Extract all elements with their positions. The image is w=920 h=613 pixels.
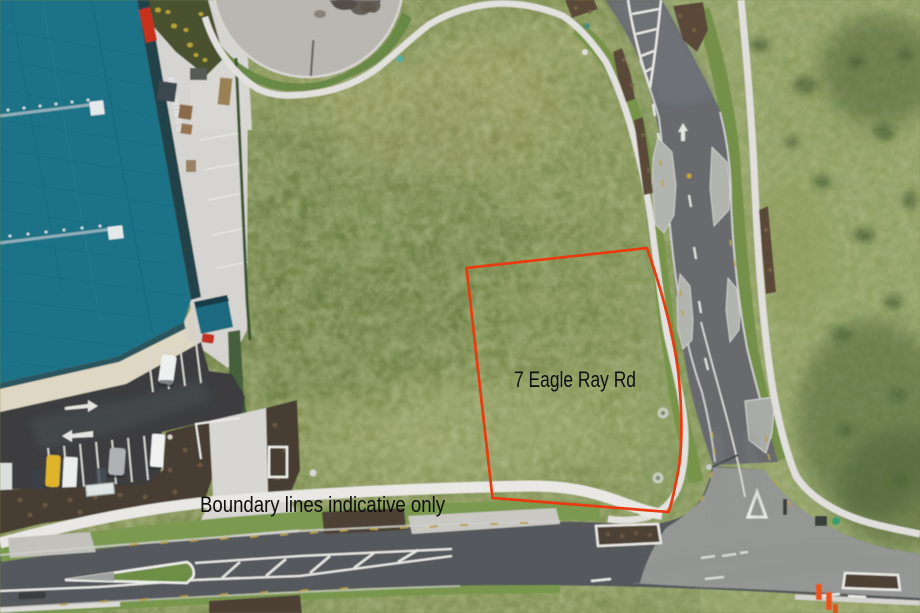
svg-text:7 Eagle Ray Rd: 7 Eagle Ray Rd bbox=[514, 367, 636, 392]
svg-text:Boundary lines indicative only: Boundary lines indicative only bbox=[200, 492, 445, 517]
